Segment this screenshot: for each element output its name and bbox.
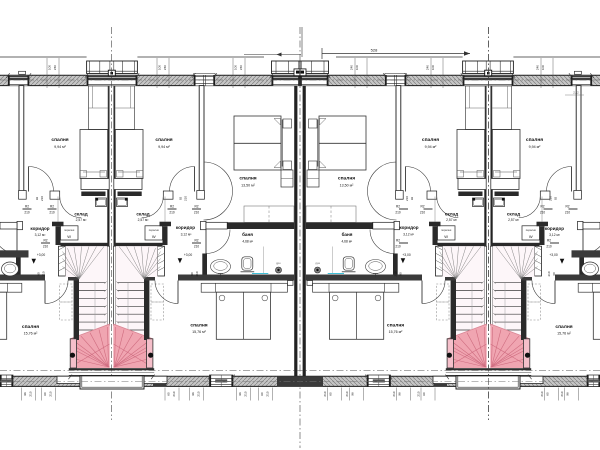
svg-text:528: 528 [371,48,378,53]
svg-text:60: 60 [260,392,264,396]
svg-text:92: 92 [410,197,414,201]
svg-text:3,12 м²: 3,12 м² [181,233,193,237]
svg-text:240: 240 [350,65,354,70]
svg-text:спалня: спалня [239,177,256,182]
svg-text:13,50 м²: 13,50 м² [340,184,354,188]
svg-text:240: 240 [53,65,57,70]
svg-text:спалня: спалня [526,138,543,143]
svg-text:4,68 м²: 4,68 м² [341,240,353,244]
svg-text:9,94 м²: 9,94 м² [529,145,541,149]
svg-text:96: 96 [23,392,27,396]
svg-text:60: 60 [422,392,426,396]
svg-text:2,57 м²: 2,57 м² [446,218,458,222]
svg-text:210: 210 [265,391,269,396]
svg-text:60: 60 [43,392,47,396]
svg-text:R2: R2 [43,239,47,243]
svg-text:210: 210 [546,245,552,249]
svg-text:2,57 м²: 2,57 м² [138,218,150,222]
svg-text:210: 210 [28,391,32,396]
svg-text:3,12 м²: 3,12 м² [35,233,47,237]
svg-text:R2: R2 [396,239,400,243]
svg-text:96: 96 [566,392,570,396]
svg-text:R2: R2 [194,205,198,209]
svg-text:пералня: пералня [149,229,160,232]
svg-text:210: 210 [195,271,199,276]
svg-text:2,57 м²: 2,57 м² [508,218,520,222]
svg-text:15,76 м²: 15,76 м² [24,332,38,336]
svg-text:210: 210 [540,211,546,215]
svg-text:100: 100 [233,65,237,70]
svg-text:15,76 м²: 15,76 м² [192,330,206,334]
svg-text:спалня: спалня [387,324,404,329]
svg-text:баня: баня [242,231,253,237]
svg-text:210: 210 [194,245,200,249]
svg-text:210: 210 [169,211,175,215]
svg-text:80: 80 [190,272,194,276]
svg-text:пералня: пералня [441,229,452,232]
svg-text:пералня: пералня [526,229,537,232]
svg-text:склад: склад [445,212,458,217]
svg-text:пералня: пералня [64,229,75,232]
svg-text:210: 210 [243,391,247,396]
svg-text:4,68 м²: 4,68 м² [242,240,254,244]
svg-text:спалня: спалня [51,138,68,143]
svg-text:коридор: коридор [176,225,195,230]
svg-text:96: 96 [238,392,242,396]
svg-text:210: 210 [394,271,398,276]
svg-text:спалня: спалня [22,325,39,330]
svg-text:210: 210 [345,391,349,396]
svg-text:240: 240 [536,65,540,70]
svg-text:80: 80 [399,272,403,276]
svg-text:R2: R2 [420,205,424,209]
svg-text:96: 96 [351,392,355,396]
svg-text:9,94 м²: 9,94 м² [54,145,66,149]
svg-text:3,12 м²: 3,12 м² [549,233,561,237]
svg-text:коридор: коридор [545,226,564,231]
svg-text:+3,00: +3,00 [184,253,193,257]
svg-text:R2: R2 [194,239,198,243]
svg-text:R2: R2 [540,205,544,209]
svg-text:210: 210 [560,391,564,396]
svg-text:210: 210 [196,391,200,396]
svg-text:спалня: спалня [190,324,207,329]
svg-text:100: 100 [47,65,51,70]
svg-text:210: 210 [40,196,44,201]
svg-text:210: 210 [565,211,571,215]
svg-text:210: 210 [417,391,421,396]
svg-text:спалня: спалня [422,138,439,143]
svg-text:210: 210 [48,391,52,396]
svg-text:R2: R2 [565,205,569,209]
svg-text:R2: R2 [170,205,174,209]
svg-text:210: 210 [49,211,55,215]
svg-text:+3,00: +3,00 [549,253,558,257]
svg-text:240: 240 [426,65,430,70]
svg-text:240: 240 [163,65,167,70]
svg-text:спалня: спалня [155,138,172,143]
svg-text:210: 210 [194,211,200,215]
svg-text:R2: R2 [25,205,29,209]
svg-text:R2: R2 [50,205,54,209]
svg-text:15,76 м²: 15,76 м² [389,330,403,334]
svg-text:60: 60 [329,392,333,396]
svg-text:2,12: 2,12 [573,91,579,95]
svg-text:210: 210 [323,391,327,396]
svg-text:210: 210 [392,391,396,396]
svg-text:душ: душ [276,262,281,265]
svg-text:210: 210 [172,391,176,396]
svg-text:13,50 м²: 13,50 м² [241,184,255,188]
svg-text:склад: склад [507,212,520,217]
svg-text:9,94 м²: 9,94 м² [158,145,170,149]
svg-text:душ: душ [315,262,320,265]
svg-text:склад: склад [74,212,87,217]
svg-text:100: 100 [355,65,359,70]
svg-text:92: 92 [179,197,183,201]
svg-text:спалня: спалня [338,177,355,182]
svg-text:коридор: коридор [399,225,418,230]
svg-text:склад: склад [136,212,149,217]
svg-text:W: W [529,234,533,239]
svg-text:210: 210 [395,211,401,215]
svg-text:240: 240 [239,65,243,70]
svg-text:210: 210 [547,271,551,276]
svg-text:15,76 м²: 15,76 м² [557,332,571,336]
svg-text:92: 92 [35,197,39,201]
svg-text:210: 210 [43,245,49,249]
svg-text:60: 60 [552,272,556,276]
svg-text:W: W [67,234,71,239]
svg-text:100: 100 [541,65,545,70]
svg-text:210: 210 [420,211,426,215]
svg-text:спалня: спалня [555,325,572,330]
svg-text:210: 210 [395,245,401,249]
svg-text:+3,00: +3,00 [402,253,411,257]
svg-text:W: W [444,234,448,239]
svg-text:92: 92 [554,197,558,201]
svg-text:210: 210 [42,271,46,276]
svg-text:100: 100 [157,65,161,70]
svg-text:60: 60 [546,392,550,396]
svg-text:+3,00: +3,00 [37,253,46,257]
svg-text:210: 210 [184,196,188,201]
svg-text:R2: R2 [547,239,551,243]
svg-text:210: 210 [405,196,409,201]
svg-text:210: 210 [540,391,544,396]
svg-text:210: 210 [24,211,30,215]
svg-text:9,94 м²: 9,94 м² [425,145,437,149]
svg-text:коридор: коридор [30,226,49,231]
svg-text:96: 96 [398,392,402,396]
svg-text:96: 96 [191,392,195,396]
svg-text:2,57 м²: 2,57 м² [76,218,88,222]
svg-text:R2: R2 [396,205,400,209]
svg-text:210: 210 [549,196,553,201]
svg-text:W: W [152,234,156,239]
svg-text:60: 60 [166,392,170,396]
svg-text:60: 60 [37,272,41,276]
svg-text:100: 100 [431,65,435,70]
svg-text:баня: баня [342,231,353,237]
svg-text:3,12 м²: 3,12 м² [403,233,415,237]
